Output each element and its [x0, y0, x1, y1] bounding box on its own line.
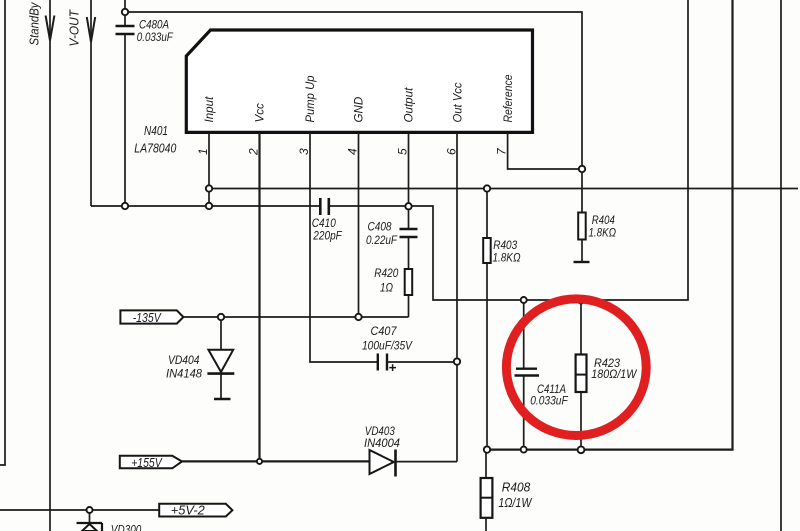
svg-text:+155V: +155V: [131, 456, 163, 470]
svg-text:Output: Output: [403, 87, 416, 123]
svg-text:R408: R408: [502, 480, 531, 495]
svg-text:V-OUT: V-OUT: [68, 9, 82, 47]
svg-text:StandBy: StandBy: [28, 2, 42, 46]
svg-text:N401: N401: [144, 124, 168, 138]
svg-text:1.8KΩ: 1.8KΩ: [493, 251, 521, 265]
svg-text:LA78040: LA78040: [134, 140, 177, 155]
svg-text:+5V-2: +5V-2: [171, 503, 205, 517]
svg-text:Vcc: Vcc: [254, 103, 267, 123]
svg-text:C407: C407: [371, 324, 398, 338]
svg-text:1Ω/1W: 1Ω/1W: [498, 495, 532, 510]
svg-text:2: 2: [246, 148, 260, 156]
svg-text:1: 1: [196, 148, 210, 155]
svg-text:0.22uF: 0.22uF: [366, 233, 398, 247]
svg-text:220pF: 220pF: [312, 229, 343, 243]
svg-text:C408: C408: [368, 220, 392, 234]
svg-text:1Ω: 1Ω: [380, 280, 393, 294]
svg-text:IN4148: IN4148: [166, 366, 202, 380]
svg-text:Out Vcc: Out Vcc: [452, 82, 465, 122]
svg-text:Pump Up: Pump Up: [304, 75, 317, 123]
svg-text:4: 4: [345, 148, 359, 155]
svg-text:R420: R420: [374, 266, 398, 280]
svg-text:IN4004: IN4004: [364, 436, 400, 450]
svg-text:5: 5: [395, 148, 409, 155]
svg-text:VD300: VD300: [111, 523, 142, 531]
svg-text:1.8KΩ: 1.8KΩ: [589, 226, 617, 240]
svg-text:VD404: VD404: [168, 353, 200, 367]
svg-text:C480A: C480A: [139, 17, 169, 31]
svg-text:3: 3: [297, 148, 311, 155]
svg-text:0.033uF: 0.033uF: [137, 30, 174, 44]
svg-text:Input: Input: [203, 96, 216, 123]
svg-text:GND: GND: [353, 97, 366, 123]
svg-text:0.033uF: 0.033uF: [530, 393, 569, 407]
svg-text:Reference: Reference: [502, 74, 515, 122]
svg-text:-135V: -135V: [133, 311, 162, 325]
svg-text:100uF/35V: 100uF/35V: [362, 339, 413, 353]
svg-text:180Ω/1W: 180Ω/1W: [591, 367, 637, 381]
